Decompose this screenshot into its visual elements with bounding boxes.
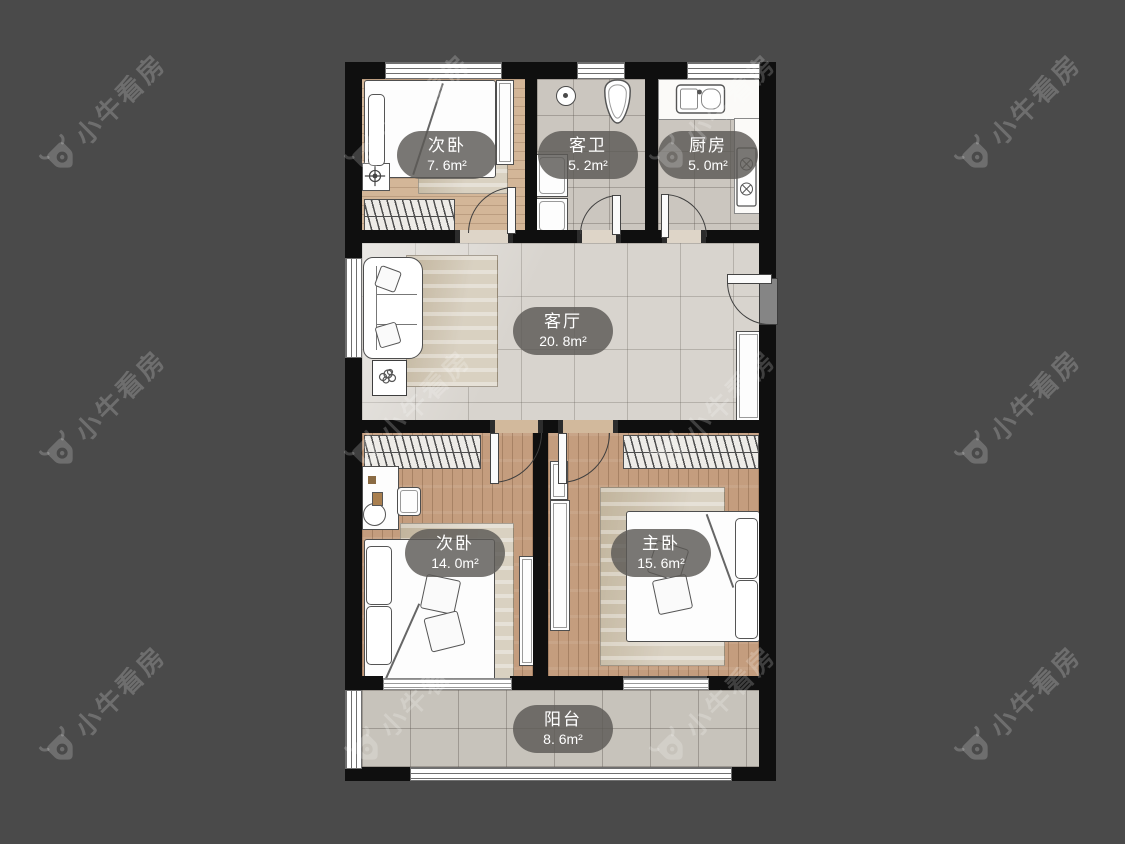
room-label-guest-bathroom: 客卫 5. 2m² bbox=[538, 131, 638, 179]
room-name: 主卧 bbox=[642, 534, 680, 554]
watermark-text: 小牛看房 bbox=[65, 636, 173, 744]
window bbox=[345, 258, 362, 358]
watermark: 小牛看房 bbox=[951, 44, 1088, 181]
bull-logo-icon bbox=[952, 132, 1000, 180]
sliding-door bbox=[383, 678, 512, 690]
wardrobe-icon bbox=[364, 435, 481, 469]
door-threshold bbox=[558, 420, 618, 433]
watermark-text: 小牛看房 bbox=[65, 44, 173, 152]
room-name: 阳台 bbox=[544, 710, 582, 730]
bull-logo-icon bbox=[37, 428, 85, 476]
wardrobe-icon bbox=[623, 435, 759, 469]
wall bbox=[759, 323, 776, 781]
toilet-icon bbox=[602, 79, 633, 124]
room-area: 14. 0m² bbox=[431, 555, 478, 572]
pillow-icon bbox=[366, 606, 392, 665]
shower-head-icon bbox=[556, 86, 576, 106]
entry-door-leaf bbox=[727, 274, 772, 284]
room-label-kitchen: 厨房 5. 0m² bbox=[658, 131, 758, 179]
wall bbox=[707, 676, 759, 690]
window bbox=[577, 62, 625, 79]
watermark-text: 小牛看房 bbox=[980, 636, 1088, 744]
watermark: 小牛看房 bbox=[951, 636, 1088, 773]
watermark: 小牛看房 bbox=[36, 340, 173, 477]
watermark-text: 小牛看房 bbox=[980, 44, 1088, 152]
window bbox=[687, 62, 760, 79]
room-name: 次卧 bbox=[436, 534, 474, 554]
bull-logo-icon bbox=[37, 724, 85, 772]
stool-icon bbox=[397, 487, 421, 516]
bull-logo-icon bbox=[952, 428, 1000, 476]
wall bbox=[345, 356, 362, 690]
wall bbox=[621, 230, 662, 243]
throw-pillow-icon bbox=[652, 574, 694, 616]
room-area: 15. 6m² bbox=[637, 555, 684, 572]
room-area: 5. 0m² bbox=[688, 157, 728, 174]
washbasin-icon bbox=[536, 198, 568, 234]
ac-floor-unit-icon bbox=[362, 163, 390, 191]
wall bbox=[623, 62, 687, 79]
room-label-balcony: 阳台 8. 6m² bbox=[513, 705, 613, 753]
sliding-door bbox=[623, 678, 709, 690]
room-name: 客卫 bbox=[569, 136, 607, 156]
kitchen-sink-icon bbox=[675, 84, 726, 114]
room-label-living-room: 客厅 20. 8m² bbox=[513, 307, 613, 355]
door-threshold bbox=[490, 420, 543, 433]
room-name: 厨房 bbox=[689, 136, 727, 156]
room-area: 5. 2m² bbox=[568, 157, 608, 174]
watermark: 小牛看房 bbox=[951, 340, 1088, 477]
watermark: 小牛看房 bbox=[36, 636, 173, 773]
door-leaf bbox=[612, 195, 621, 235]
door-leaf bbox=[507, 187, 516, 234]
wardrobe-icon bbox=[364, 199, 455, 232]
pillow-icon bbox=[368, 94, 385, 166]
shoe-cabinet-icon bbox=[736, 331, 761, 421]
wall bbox=[500, 62, 577, 79]
desk-lamp-icon bbox=[368, 476, 376, 484]
watermark: 小牛看房 bbox=[36, 44, 173, 181]
room-area: 20. 8m² bbox=[539, 333, 586, 350]
wall bbox=[345, 62, 362, 258]
window bbox=[385, 62, 502, 79]
wall bbox=[759, 62, 776, 278]
door-leaf bbox=[661, 194, 669, 238]
room-label-master-bedroom: 主卧 15. 6m² bbox=[611, 529, 711, 577]
bull-logo-icon bbox=[952, 724, 1000, 772]
wall bbox=[543, 420, 558, 433]
wall bbox=[730, 767, 776, 781]
wall bbox=[645, 79, 658, 230]
wall bbox=[525, 79, 537, 230]
tv-bench-icon bbox=[550, 500, 570, 631]
pillow-icon bbox=[366, 546, 392, 605]
room-label-second-bedroom: 次卧 14. 0m² bbox=[405, 529, 505, 577]
watermark-text: 小牛看房 bbox=[65, 340, 173, 448]
desk-item-icon bbox=[372, 492, 383, 506]
pillow-icon bbox=[735, 580, 758, 639]
balcony-window bbox=[410, 767, 732, 781]
plant-pot-icon bbox=[372, 360, 407, 396]
room-name: 客厅 bbox=[544, 312, 582, 332]
wall bbox=[362, 676, 383, 690]
chair-icon bbox=[363, 503, 386, 526]
wall bbox=[706, 230, 759, 243]
bedside-shelf-icon bbox=[496, 80, 514, 165]
room-name: 次卧 bbox=[428, 136, 466, 156]
sofa-icon bbox=[363, 257, 423, 359]
wall bbox=[345, 767, 410, 781]
wall bbox=[362, 420, 490, 433]
room-area: 8. 6m² bbox=[543, 731, 583, 748]
bull-logo-icon bbox=[37, 132, 85, 180]
wall bbox=[618, 420, 759, 433]
wall bbox=[362, 230, 455, 243]
floorplan-image: 次卧 7. 6m² 客卫 5. 2m² 厨房 5. 0m² 客厅 20. 8m²… bbox=[0, 0, 1125, 844]
room-area: 7. 6m² bbox=[427, 157, 467, 174]
door-leaf bbox=[490, 433, 499, 484]
watermark-text: 小牛看房 bbox=[980, 340, 1088, 448]
room-label-bedroom-top: 次卧 7. 6m² bbox=[397, 131, 497, 179]
wall bbox=[533, 433, 548, 676]
wall bbox=[513, 230, 577, 243]
throw-pillow-icon bbox=[420, 574, 462, 616]
wall bbox=[510, 676, 623, 690]
door-leaf bbox=[558, 433, 567, 484]
window bbox=[345, 690, 362, 769]
pillow-icon bbox=[735, 518, 758, 579]
